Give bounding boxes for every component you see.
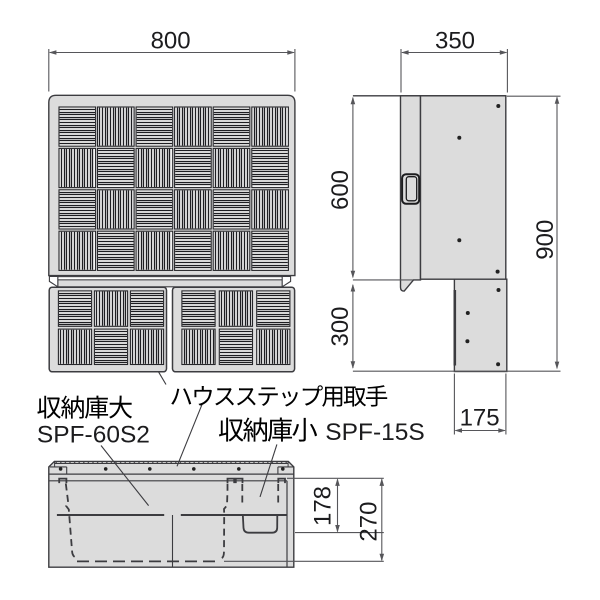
svg-text:300: 300 [327, 306, 354, 346]
svg-text:270: 270 [355, 502, 382, 542]
svg-text:350: 350 [435, 27, 475, 54]
svg-text:900: 900 [532, 220, 559, 260]
svg-text:175: 175 [460, 405, 500, 432]
svg-text:SPF-60S2: SPF-60S2 [37, 421, 150, 448]
svg-text:178: 178 [310, 486, 337, 526]
svg-text:SPF-15S: SPF-15S [325, 419, 424, 446]
svg-text:600: 600 [327, 170, 354, 210]
svg-text:800: 800 [151, 27, 191, 54]
